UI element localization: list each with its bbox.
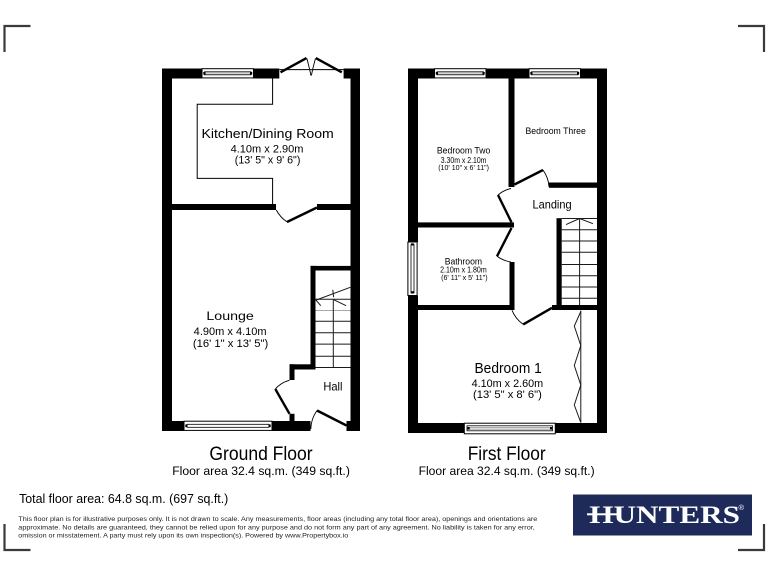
svg-text:omission or misstatement. A pa: omission or misstatement. A party must r… xyxy=(18,533,348,540)
svg-text:(10' 10" x 6' 11"): (10' 10" x 6' 11") xyxy=(438,163,489,172)
svg-text:This floor plan is for illustr: This floor plan is for illustrative purp… xyxy=(18,516,537,523)
svg-text:Total floor area: 64.8 sq.m. (: Total floor area: 64.8 sq.m. (697 sq.ft.… xyxy=(19,492,228,506)
svg-text:Kitchen/Dining Room: Kitchen/Dining Room xyxy=(202,126,334,141)
svg-text:Landing: Landing xyxy=(533,197,572,211)
svg-text:®: ® xyxy=(739,503,745,512)
svg-text:(13' 5" x 9' 6"): (13' 5" x 9' 6") xyxy=(235,155,301,167)
svg-text:First Floor: First Floor xyxy=(468,443,546,465)
svg-text:approximate. No details are gu: approximate. No details are guaranteed, … xyxy=(18,524,535,531)
svg-text:(16' 1" x 13' 5"): (16' 1" x 13' 5") xyxy=(193,338,268,350)
svg-text:Ground Floor: Ground Floor xyxy=(209,443,313,465)
svg-text:Bedroom 1: Bedroom 1 xyxy=(475,360,542,377)
svg-text:Floor area 32.4 sq.m. (349 sq.: Floor area 32.4 sq.m. (349 sq.ft.) xyxy=(419,464,595,478)
svg-text:Floor area 32.4 sq.m. (349 sq.: Floor area 32.4 sq.m. (349 sq.ft.) xyxy=(172,464,350,478)
svg-text:Bedroom Three: Bedroom Three xyxy=(526,126,586,137)
svg-text:Hall: Hall xyxy=(323,379,342,393)
svg-text:4.90m x 4.10m: 4.90m x 4.10m xyxy=(194,326,267,338)
svg-text:Lounge: Lounge xyxy=(206,310,253,323)
svg-text:(13' 5" x 8' 6"): (13' 5" x 8' 6") xyxy=(473,389,542,401)
svg-text:(6' 11" x 5' 11"): (6' 11" x 5' 11") xyxy=(441,273,488,282)
